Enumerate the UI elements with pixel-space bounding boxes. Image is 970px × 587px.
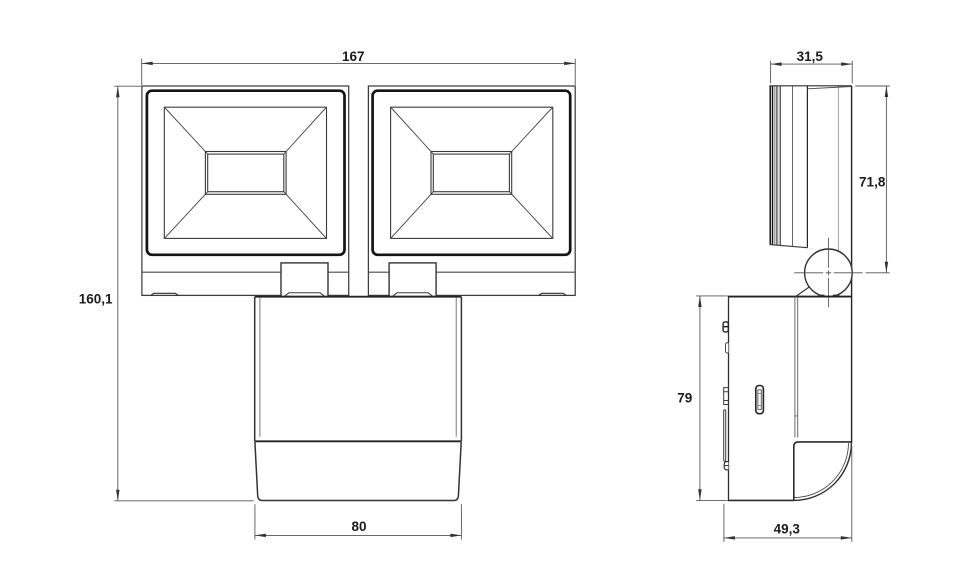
svg-text:167: 167 [342, 49, 365, 64]
svg-text:160,1: 160,1 [79, 291, 113, 306]
svg-text:71,8: 71,8 [859, 175, 886, 190]
svg-text:49,3: 49,3 [774, 522, 801, 537]
svg-text:31,5: 31,5 [797, 49, 824, 64]
svg-text:80: 80 [351, 519, 366, 534]
svg-text:79: 79 [677, 390, 692, 405]
